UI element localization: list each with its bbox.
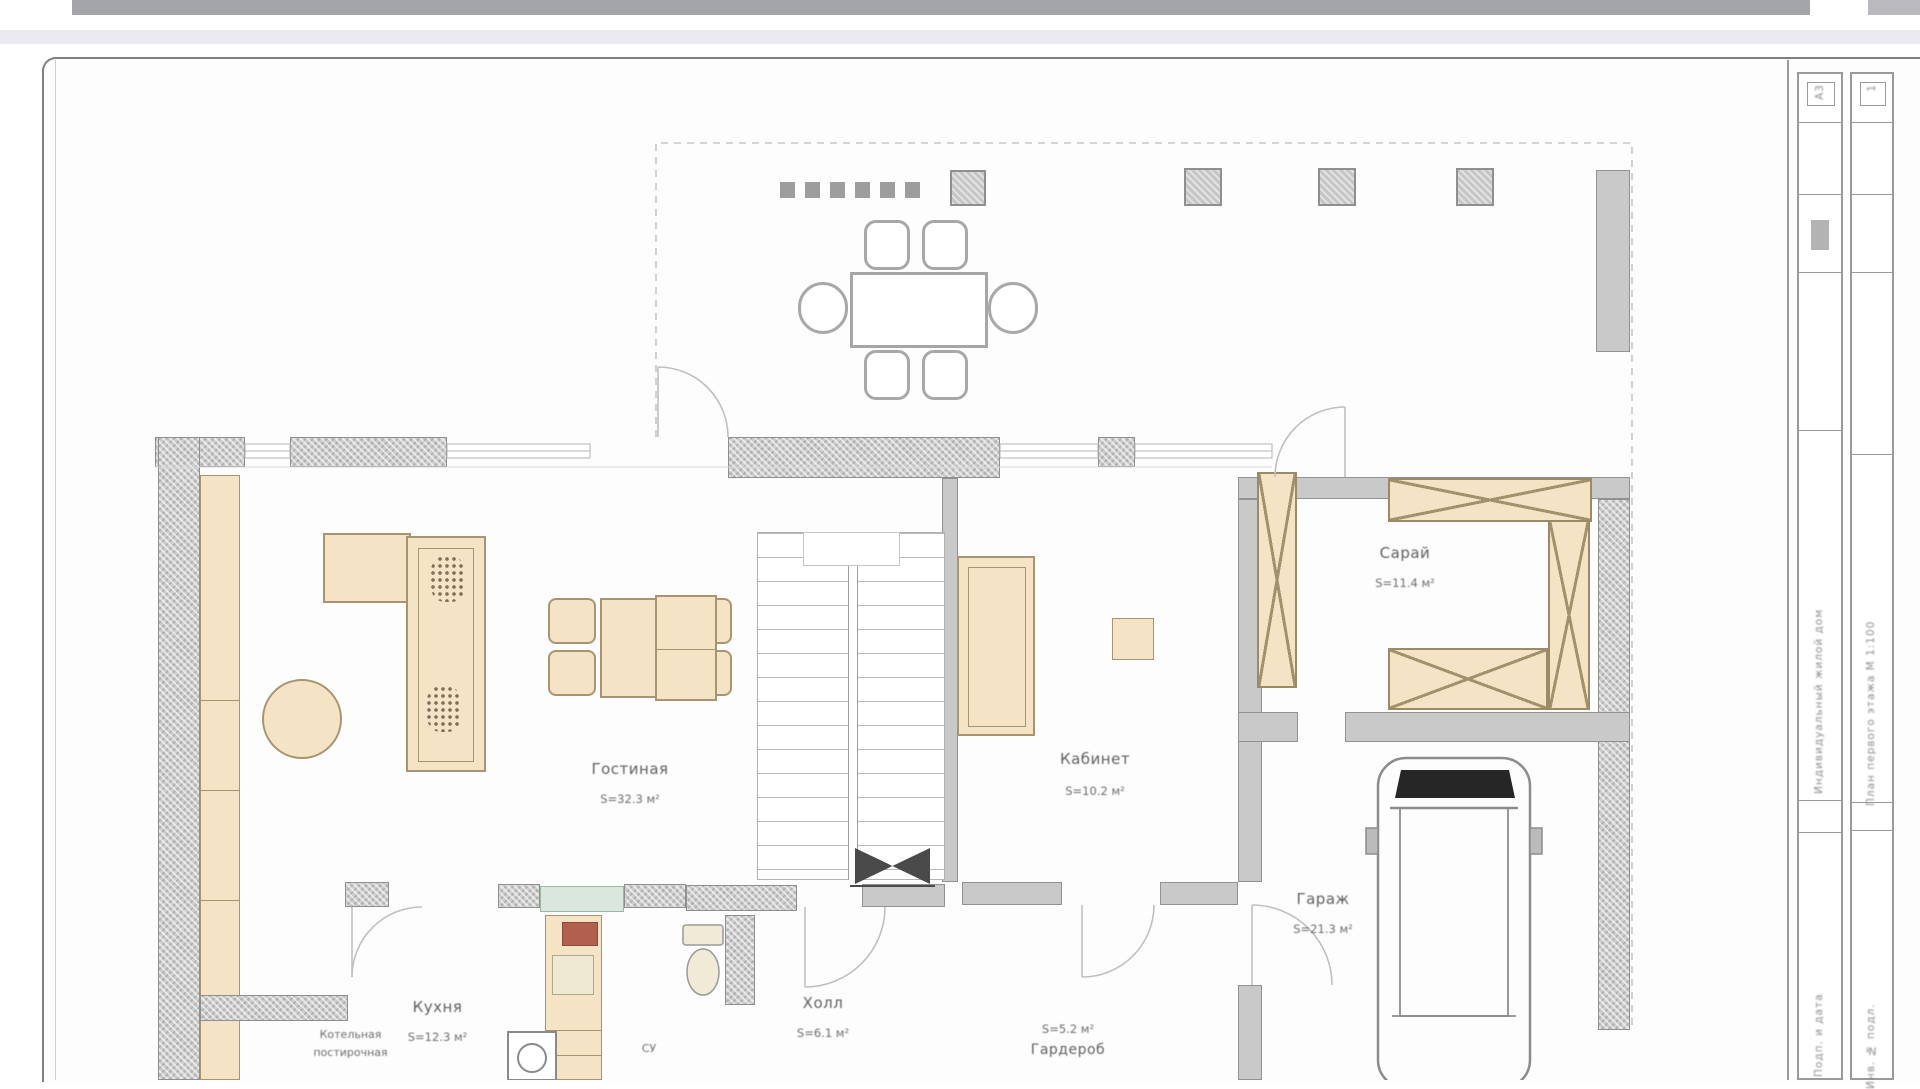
room-label-boiler-2: постирочная: [278, 1046, 423, 1059]
room-area-living: S=32.3 м²: [555, 792, 705, 806]
room-label-wardrobe: Гардероб: [1012, 1042, 1124, 1058]
room-area-office: S=10.2 м²: [1030, 784, 1160, 798]
room-area-wardrobe: S=5.2 м²: [1012, 1022, 1124, 1036]
room-area-shed: S=11.4 м²: [1350, 576, 1460, 590]
plan-linework: [0, 0, 1920, 1080]
room-label-hall: Холл: [778, 994, 868, 1012]
room-label-shed: Сарай: [1350, 544, 1460, 562]
room-label-office: Кабинет: [1030, 750, 1160, 768]
room-area-hall: S=6.1 м²: [778, 1026, 868, 1040]
room-label-wc: СУ: [628, 1042, 670, 1055]
room-label-living: Гостиная: [555, 760, 705, 778]
room-label-garage: Гараж: [1268, 890, 1378, 908]
room-label-kitchen: Кухня: [390, 998, 485, 1016]
room-area-garage: S=21.3 м²: [1268, 922, 1378, 936]
room-label-boiler: Котельная: [278, 1028, 423, 1041]
